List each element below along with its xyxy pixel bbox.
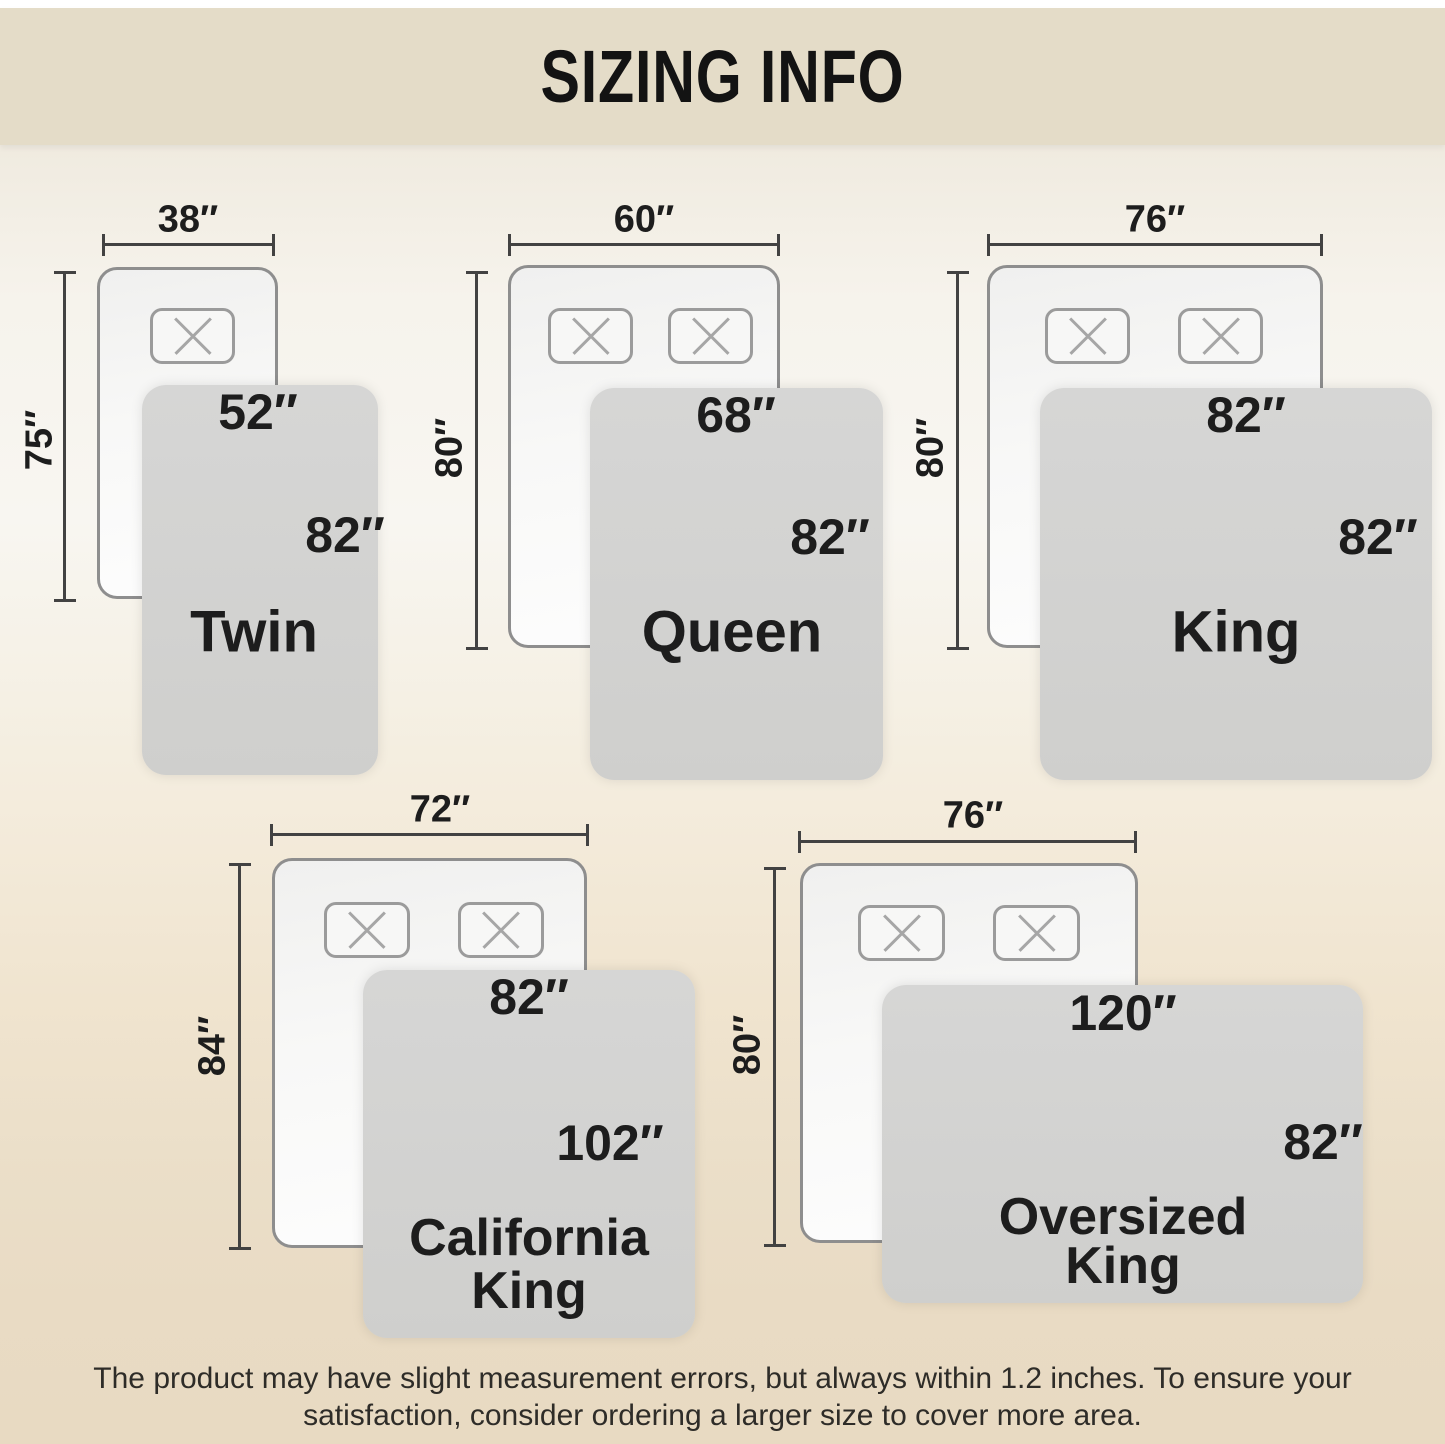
oversized-king-width-dimension-line (798, 840, 1137, 843)
sizing-info-page: SIZING INFO 38″ 75″ 52″ 82″ Twin 60″ 80″ (0, 0, 1445, 1444)
disclaimer-line-2: satisfaction, consider ordering a larger… (0, 1397, 1445, 1434)
oversized-king-bed-width-label: 76″ (943, 795, 1003, 838)
disclaimer-line-1: The product may have slight measurement … (0, 1360, 1445, 1397)
pillow (993, 905, 1080, 961)
size-diagram-oversized-king: 76″ 80″ 120″ 82″ Oversized King (0, 0, 1445, 1444)
oversized-king-size-name-line2: King (1065, 1236, 1181, 1296)
pillow-x-icon (861, 908, 942, 958)
oversized-king-blanket-length-label: 82″ (1283, 1113, 1363, 1171)
disclaimer-text: The product may have slight measurement … (0, 1360, 1445, 1434)
oversized-king-bed-length-label: 80″ (727, 1015, 770, 1075)
pillow-x-icon (996, 908, 1077, 958)
oversized-king-length-dimension-line (773, 867, 776, 1247)
oversized-king-blanket-width-label: 120″ (1069, 984, 1176, 1042)
pillow (858, 905, 945, 961)
